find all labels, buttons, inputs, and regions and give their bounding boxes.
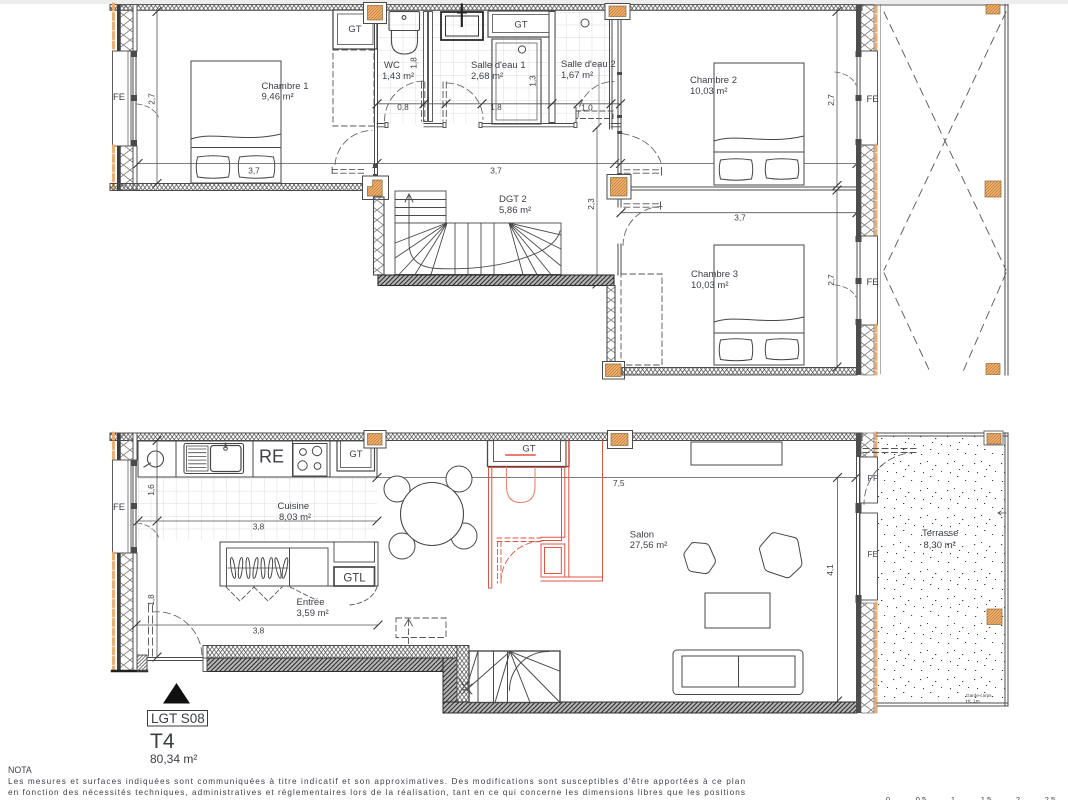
- svg-text:1: 1: [951, 795, 955, 800]
- svg-text:1,6: 1,6: [146, 484, 156, 496]
- svg-text:5,86 m²: 5,86 m²: [499, 205, 531, 216]
- svg-text:FE: FE: [113, 92, 125, 103]
- svg-text:Terrasse: Terrasse: [922, 528, 958, 539]
- svg-text:0: 0: [886, 795, 890, 800]
- svg-text:Chambre 3: Chambre 3: [691, 269, 738, 280]
- svg-text:2,3: 2,3: [586, 198, 596, 210]
- svg-text:2,7: 2,7: [147, 93, 157, 105]
- svg-text:1,67 m²: 1,67 m²: [561, 70, 593, 81]
- svg-text:4,1: 4,1: [825, 564, 835, 576]
- svg-text:80,34 m²: 80,34 m²: [150, 752, 197, 766]
- svg-text:Chambre 2: Chambre 2: [690, 75, 737, 86]
- svg-text:Salon: Salon: [630, 530, 654, 541]
- svg-text:DGT 2: DGT 2: [499, 194, 527, 205]
- svg-text:Ht. 1m.: Ht. 1m.: [966, 699, 981, 704]
- svg-text:1,3: 1,3: [528, 75, 538, 87]
- svg-text:GTL: GTL: [343, 573, 366, 585]
- svg-text:NOTA: NOTA: [8, 765, 32, 775]
- svg-text:T4: T4: [150, 730, 175, 753]
- svg-text:0,8: 0,8: [397, 102, 409, 112]
- svg-text:1.5: 1.5: [981, 795, 991, 800]
- svg-text:3,8: 3,8: [253, 626, 265, 636]
- svg-text:3,7: 3,7: [248, 166, 260, 176]
- svg-text:3,7: 3,7: [490, 166, 502, 176]
- svg-text:Les mesures et surfaces indiqu: Les mesures et surfaces indiquées sont c…: [8, 777, 745, 786]
- svg-text:Salle d'eau 1: Salle d'eau 1: [471, 60, 526, 71]
- svg-text:1,0: 1,0: [581, 103, 593, 113]
- svg-text:1,8: 1,8: [490, 102, 502, 112]
- svg-text:WC: WC: [384, 60, 400, 71]
- svg-text:3,7: 3,7: [734, 213, 746, 223]
- svg-text:9,46 m²: 9,46 m²: [262, 92, 294, 103]
- svg-text:FE: FE: [868, 550, 879, 559]
- svg-text:10,03 m²: 10,03 m²: [691, 280, 729, 291]
- svg-text:GT: GT: [349, 449, 362, 460]
- svg-text:GT: GT: [522, 444, 535, 455]
- svg-text:8,30 m²: 8,30 m²: [924, 540, 956, 551]
- svg-text:FE: FE: [113, 502, 125, 513]
- svg-text:1,43 m²: 1,43 m²: [382, 71, 414, 82]
- svg-text:FE: FE: [867, 94, 879, 105]
- svg-text:Garde-corps: Garde-corps: [966, 693, 992, 698]
- svg-text:Salle d'eau 2: Salle d'eau 2: [561, 59, 616, 70]
- svg-text:27,56 m²: 27,56 m²: [630, 540, 668, 551]
- svg-text:7,5: 7,5: [613, 478, 625, 488]
- svg-text:GT: GT: [348, 24, 361, 35]
- svg-text:2,7: 2,7: [826, 94, 836, 106]
- svg-text:10,03 m²: 10,03 m²: [690, 86, 728, 97]
- svg-text:Chambre 1: Chambre 1: [262, 81, 309, 92]
- svg-text:2: 2: [1016, 795, 1020, 800]
- svg-text:en fonction des nécessités tec: en fonction des nécessités techniques, a…: [8, 788, 745, 797]
- svg-text:2,7: 2,7: [826, 274, 836, 286]
- svg-text:FE: FE: [867, 277, 879, 288]
- svg-text:0.5: 0.5: [916, 795, 926, 800]
- svg-text:3,59 m²: 3,59 m²: [297, 608, 329, 619]
- svg-text:3,8: 3,8: [253, 522, 265, 532]
- svg-text:1,8: 1,8: [409, 57, 419, 69]
- svg-text:2.5: 2.5: [1045, 795, 1055, 800]
- svg-text:2,68 m²: 2,68 m²: [471, 71, 503, 82]
- svg-text:Entrée: Entrée: [297, 597, 325, 608]
- svg-text:RE: RE: [259, 447, 284, 467]
- svg-text:Cuisine: Cuisine: [278, 501, 310, 512]
- svg-text:GT: GT: [514, 20, 527, 31]
- svg-text:LGT S08: LGT S08: [151, 711, 205, 726]
- svg-text:1,8: 1,8: [146, 594, 156, 606]
